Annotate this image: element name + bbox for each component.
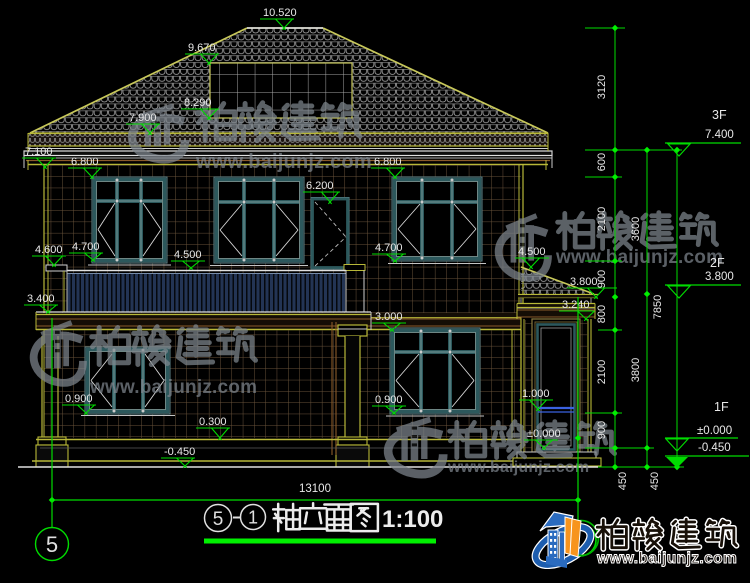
svg-text:4.500: 4.500 bbox=[518, 246, 546, 258]
svg-text:3.400: 3.400 bbox=[27, 293, 55, 305]
svg-text:1.000: 1.000 bbox=[522, 388, 550, 400]
svg-text:1: 1 bbox=[248, 508, 258, 528]
svg-text:7850: 7850 bbox=[652, 295, 664, 319]
svg-text:9.670: 9.670 bbox=[188, 42, 216, 54]
svg-text:4.600: 4.600 bbox=[35, 244, 63, 256]
svg-text:±0.000: ±0.000 bbox=[697, 425, 732, 437]
svg-text:-0.450: -0.450 bbox=[164, 446, 195, 458]
svg-text:6.200: 6.200 bbox=[306, 180, 334, 192]
svg-text:2100: 2100 bbox=[596, 360, 608, 384]
svg-text:2F: 2F bbox=[710, 256, 725, 270]
svg-text:6.800: 6.800 bbox=[374, 156, 402, 168]
svg-text:1:100: 1:100 bbox=[382, 506, 443, 533]
svg-text:10.520: 10.520 bbox=[263, 7, 297, 19]
svg-text:3800: 3800 bbox=[630, 358, 642, 382]
svg-text:4.700: 4.700 bbox=[375, 242, 403, 254]
svg-text:4.700: 4.700 bbox=[72, 241, 100, 253]
svg-text:5: 5 bbox=[46, 532, 58, 557]
svg-text:www.baijunjz.com: www.baijunjz.com bbox=[596, 550, 737, 567]
svg-text:13100: 13100 bbox=[299, 483, 331, 495]
svg-text:2100: 2100 bbox=[596, 207, 608, 231]
svg-text:3.800: 3.800 bbox=[570, 276, 598, 288]
svg-text:0.300: 0.300 bbox=[199, 416, 227, 428]
svg-text:0.900: 0.900 bbox=[375, 394, 403, 406]
svg-text:600: 600 bbox=[596, 153, 608, 171]
svg-text:www.baijunjz.com: www.baijunjz.com bbox=[555, 247, 723, 268]
svg-text:5: 5 bbox=[213, 509, 224, 530]
svg-text:450: 450 bbox=[617, 472, 629, 490]
svg-text:7.100: 7.100 bbox=[25, 146, 53, 158]
svg-text:3.800: 3.800 bbox=[705, 271, 734, 283]
svg-text:-0.450: -0.450 bbox=[698, 442, 731, 454]
svg-text:3120: 3120 bbox=[596, 75, 608, 99]
svg-text:3600: 3600 bbox=[630, 217, 642, 241]
svg-text:6.800: 6.800 bbox=[71, 156, 99, 168]
svg-text:1F: 1F bbox=[714, 400, 729, 414]
svg-text:www.baijunjz.com: www.baijunjz.com bbox=[447, 459, 589, 476]
svg-text:8.290: 8.290 bbox=[184, 97, 212, 109]
svg-text:0.900: 0.900 bbox=[65, 393, 93, 405]
svg-text:900: 900 bbox=[596, 270, 608, 288]
svg-text:www.baijunjz.com: www.baijunjz.com bbox=[89, 377, 257, 398]
svg-text:3F: 3F bbox=[712, 108, 727, 122]
svg-text:±0.000: ±0.000 bbox=[527, 428, 561, 440]
svg-text:www.baijunjz.com: www.baijunjz.com bbox=[195, 151, 372, 173]
svg-text:450: 450 bbox=[649, 472, 661, 490]
svg-text:3.240: 3.240 bbox=[562, 299, 590, 311]
svg-text:7.400: 7.400 bbox=[705, 129, 734, 141]
svg-text:7.900: 7.900 bbox=[129, 112, 157, 124]
svg-text:900: 900 bbox=[596, 421, 608, 439]
svg-text:800: 800 bbox=[596, 305, 608, 323]
svg-text:3.000: 3.000 bbox=[375, 311, 403, 323]
svg-text:4.500: 4.500 bbox=[174, 249, 202, 261]
